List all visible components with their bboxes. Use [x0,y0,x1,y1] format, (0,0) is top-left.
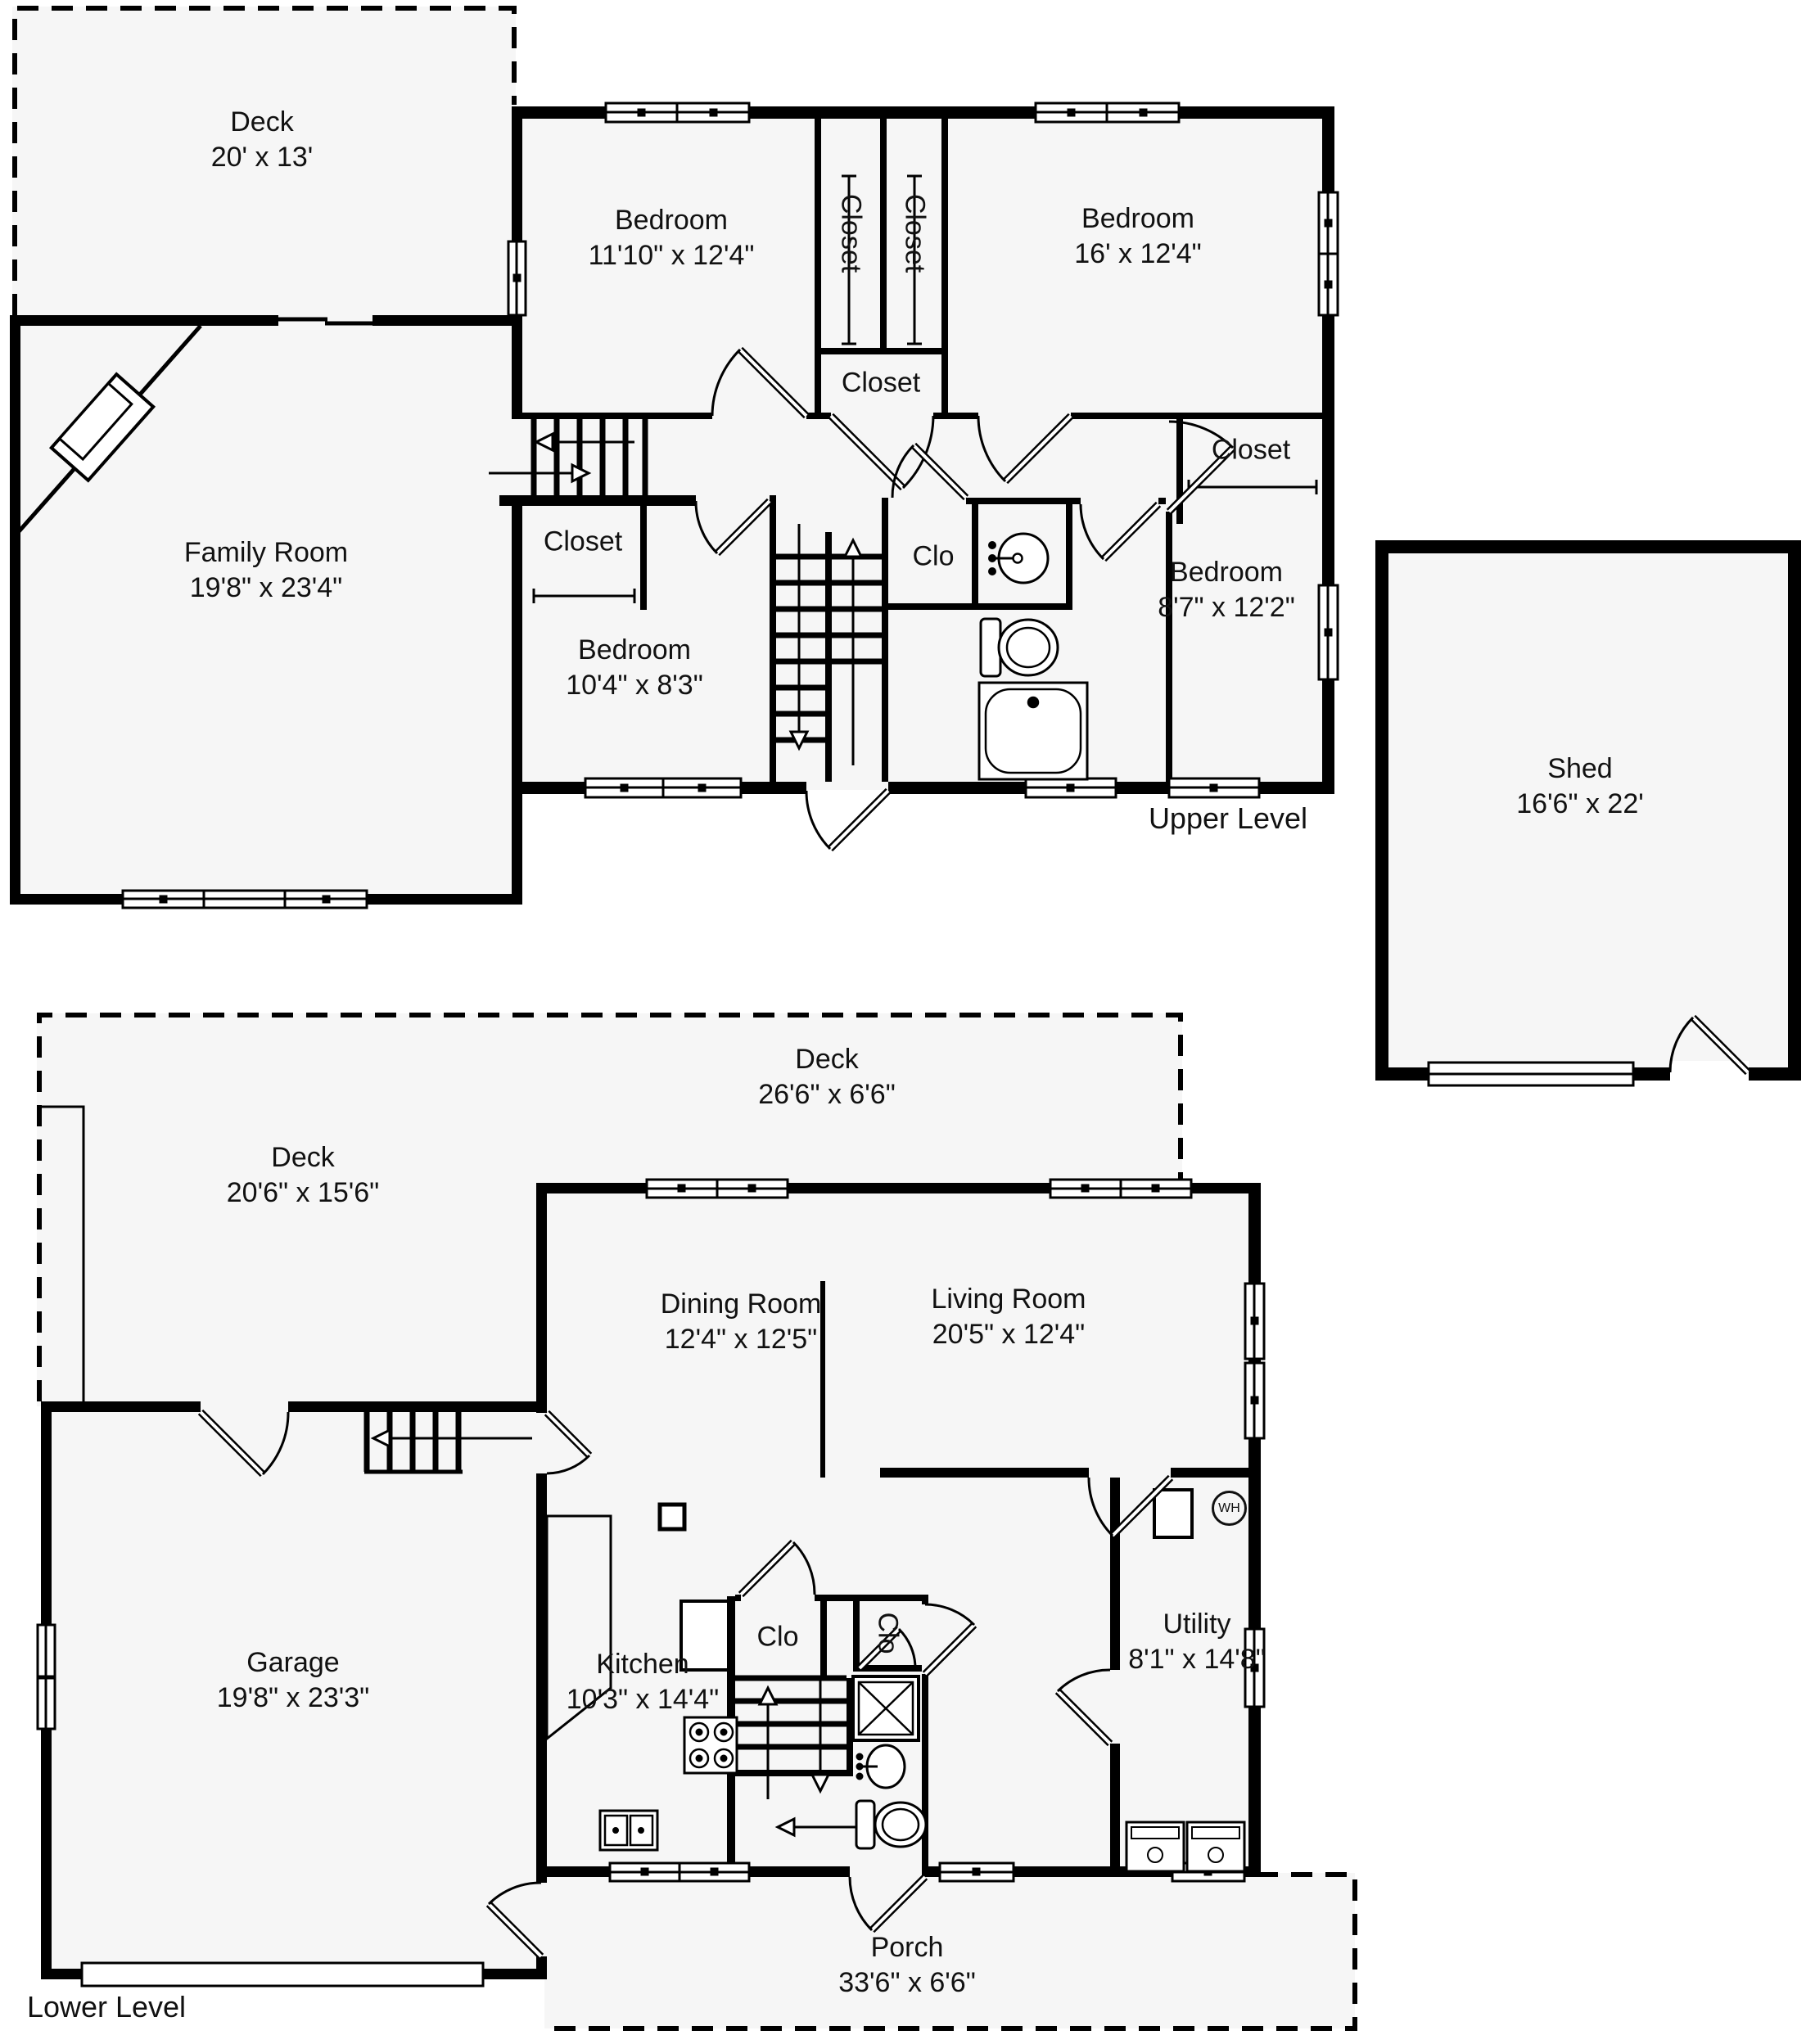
room-label-bedroom4: Bedroom 10'4" x 8'3" [566,633,703,703]
room-label-deck-upper: Deck 20' x 13' [211,105,314,175]
closet-label-tall-a: Closet [833,194,868,273]
room-dims: 8'7" x 12'2" [1158,590,1295,625]
shower-icon [853,1676,919,1740]
toilet-icon [981,619,1058,676]
closet-name: Closet [1212,432,1290,467]
level-name: Lower Level [27,1988,186,2026]
room-dims: 12'4" x 12'5" [661,1322,822,1357]
room-label-bedroom1: Bedroom 11'10" x 12'4" [589,203,755,273]
closet-label-clo-center: Clo [756,1619,798,1654]
room-name: Bedroom [1158,555,1295,590]
closet-label-clo-right: Clo [869,1612,905,1654]
room-dims: 20'6" x 15'6" [227,1175,379,1211]
room-label-porch: Porch 33'6" x 6'6" [838,1930,976,2001]
room-label-family-room: Family Room 19'8" x 23'4" [184,535,348,606]
room-label-bedroom3: Bedroom 8'7" x 12'2" [1158,555,1295,625]
room-label-living: Living Room 20'5" x 12'4" [932,1282,1086,1352]
room-dims: 19'8" x 23'4" [184,571,348,606]
room-dims: 26'6" x 6'6" [758,1077,896,1112]
washer-icon [1126,1822,1184,1871]
room-dims: 16'6" x 22' [1516,787,1644,822]
room-label-deck-lower-left: Deck 20'6" x 15'6" [227,1140,379,1211]
room-name: Dining Room [661,1287,822,1322]
closet-name: Closet [842,365,920,400]
level-name: Upper Level [1149,800,1307,837]
water-heater-icon: WH [1212,1491,1247,1526]
door-entry-upper [806,791,888,849]
room-name: Deck [758,1042,896,1077]
dryer-icon [1187,1822,1244,1871]
room-label-garage: Garage 19'8" x 23'3" [217,1645,369,1716]
room-name: Shed [1516,751,1644,787]
room-name: Deck [227,1140,379,1175]
stove-icon [684,1717,737,1773]
closet-label-tall-b: Closet [896,194,932,273]
closet-label-bedroom4: Closet [544,524,622,559]
room-dims: 11'10" x 12'4" [589,238,755,273]
closet-label-hall: Closet [842,365,920,400]
room-name: Kitchen [567,1647,719,1682]
room-label-shed: Shed 16'6" x 22' [1516,751,1644,822]
room-label-utility: Utility 8'1" x 14'8" [1128,1607,1266,1677]
water-heater-label: WH [1218,1501,1240,1516]
room-dims: 10'3" x 14'4" [567,1682,719,1717]
room-dims: 33'6" x 6'6" [838,1965,976,2001]
post [660,1505,684,1529]
closet-label-clo-upper: Clo [912,539,954,574]
room-label-dining: Dining Room 12'4" x 12'5" [661,1287,822,1357]
toilet-icon [856,1801,926,1848]
closet-name: Clo [912,539,954,574]
room-name: Garage [217,1645,369,1681]
closet-name: Clo [756,1619,798,1654]
room-dims: 20' x 13' [211,140,314,175]
room-name: Utility [1128,1607,1266,1642]
room-dims: 10'4" x 8'3" [566,668,703,703]
kitchen-sink-icon [600,1811,657,1850]
floorplan-page: Deck 20' x 13' Family Room 19'8" x 23'4"… [0,0,1815,2044]
room-name: Porch [838,1930,976,1965]
room-name: Deck [211,105,314,140]
room-name: Bedroom [1074,201,1202,237]
level-label-lower: Lower Level [27,1988,186,2026]
room-name: Bedroom [589,203,755,238]
room-dims: 20'5" x 12'4" [932,1317,1086,1352]
room-label-deck-lower-top: Deck 26'6" x 6'6" [758,1042,896,1112]
room-dims: 8'1" x 14'8" [1128,1642,1266,1677]
room-name: Family Room [184,535,348,571]
floorplan-svg [0,0,1815,2044]
closet-name: Clo [869,1612,905,1654]
room-dims: 19'8" x 23'3" [217,1681,369,1716]
closet-name: Closet [833,194,868,273]
furnace-icon [1154,1490,1192,1537]
level-label-upper: Upper Level [1149,800,1307,837]
closet-name: Closet [544,524,622,559]
room-label-bedroom2: Bedroom 16' x 12'4" [1074,201,1202,272]
closet-name: Closet [896,194,932,273]
room-name: Living Room [932,1282,1086,1317]
room-label-kitchen: Kitchen 10'3" x 14'4" [567,1647,719,1717]
closet-label-right: Closet [1212,432,1290,467]
room-dims: 16' x 12'4" [1074,237,1202,272]
bathtub-icon [979,683,1087,779]
room-name: Bedroom [566,633,703,668]
